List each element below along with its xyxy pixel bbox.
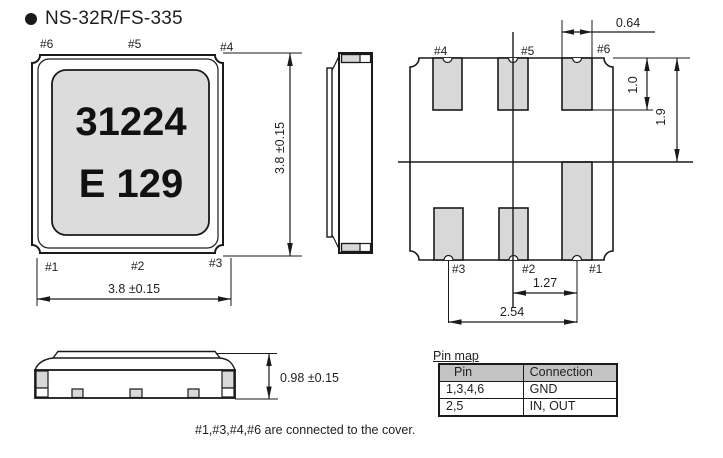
pad-3	[434, 208, 463, 260]
notch-pad-3	[444, 256, 453, 261]
dim-label-span: 2.54	[500, 306, 524, 320]
front-view-lid	[53, 352, 220, 359]
notch-pad-1	[573, 256, 582, 261]
side-view-body	[339, 53, 372, 253]
pin-label-top-6: #6	[40, 38, 53, 51]
side-view-top-pad	[342, 55, 361, 63]
header: NS-32R/FS-335	[25, 8, 183, 30]
front-view-terminal-left	[36, 371, 48, 388]
dim-half-height	[674, 58, 679, 162]
pin-map-table: Pin Connection 1,3,4,6 GND 2,5 IN, OUT	[438, 363, 618, 417]
side-view-bottom-pad	[342, 244, 361, 252]
pin-map-header-row: Pin Connection	[439, 364, 617, 382]
pin-map-row-inout: 2,5 IN, OUT	[439, 399, 617, 417]
pin-label-bottom-1: #1	[45, 261, 58, 274]
pad-1	[562, 162, 592, 260]
dim-label-top-view-height: 3.8 ±0.15	[274, 122, 288, 174]
dim-label-half-height: 1.9	[655, 108, 669, 125]
pin-map-caption: Pin map	[433, 349, 479, 363]
pin-label-top-5: #5	[128, 38, 141, 51]
pad-label-2: #2	[522, 263, 535, 276]
side-view-cover-join-bottom	[332, 235, 339, 249]
side-view-drawing	[322, 45, 380, 260]
front-view-terminal-right	[222, 371, 234, 388]
footnote: #1,#3,#4,#6 are connected to the cover.	[195, 423, 415, 437]
page-title: NS-32R/FS-335	[45, 8, 183, 30]
notch-pad-4	[443, 58, 452, 63]
front-view-terminal-left-base	[36, 388, 48, 397]
pin-map-row-gnd: 1,3,4,6 GND	[439, 382, 617, 399]
marking-line-2: E 129	[79, 164, 184, 204]
package-marking: 31224 E 129	[52, 70, 210, 235]
pad-label-5: #5	[521, 45, 534, 58]
pin-label-bottom-3: #3	[209, 257, 222, 270]
pad-label-3: #3	[452, 263, 465, 276]
pad-label-6: #6	[597, 43, 610, 56]
pad-4	[433, 58, 462, 110]
dim-label-package-height: 0.98 ±0.15	[280, 372, 339, 386]
dim-pitch	[513, 290, 577, 295]
front-view-shoulder-right	[220, 358, 235, 370]
pin-map-cell-conn-inout: IN, OUT	[523, 399, 617, 417]
pad-6	[562, 58, 592, 110]
front-view-bump-2	[130, 389, 142, 398]
pin-map-header-connection: Connection	[523, 364, 617, 382]
side-view-cover	[327, 68, 332, 237]
bullet-icon	[25, 13, 37, 25]
pin-map-header-pin: Pin	[439, 364, 523, 382]
side-view-cover-join-top	[332, 56, 339, 70]
datasheet-diagram: NS-32R/FS-335 #6 #5 #4 #1 #2 #3 3	[0, 0, 723, 458]
pin-label-bottom-2: #2	[131, 260, 144, 273]
dim-pad-height	[644, 58, 649, 110]
front-view-terminal-right-base	[222, 388, 234, 397]
top-view-height-dimension	[223, 53, 302, 256]
notch-pad-6	[573, 58, 582, 63]
pin-label-top-4: #4	[220, 41, 233, 54]
pin-map-cell-pins-gnd: 1,3,4,6	[439, 382, 523, 399]
pin-map-cell-pins-inout: 2,5	[439, 399, 523, 417]
marking-line-1: 31224	[75, 102, 186, 142]
dim-label-pitch: 1.27	[533, 277, 557, 291]
pad-label-1: #1	[589, 263, 602, 276]
dim-span	[449, 319, 578, 324]
dim-label-pad-width: 0.64	[616, 17, 640, 31]
pin-map-cell-conn-gnd: GND	[523, 382, 617, 399]
dim-label-top-view-width: 3.8 ±0.15	[108, 283, 160, 297]
front-view-bump-3	[188, 389, 199, 398]
pad-label-4: #4	[434, 45, 447, 58]
dim-label-pad-height: 1.0	[627, 76, 641, 93]
front-view-bump-1	[72, 389, 83, 398]
front-view-shoulder-left	[35, 358, 53, 370]
